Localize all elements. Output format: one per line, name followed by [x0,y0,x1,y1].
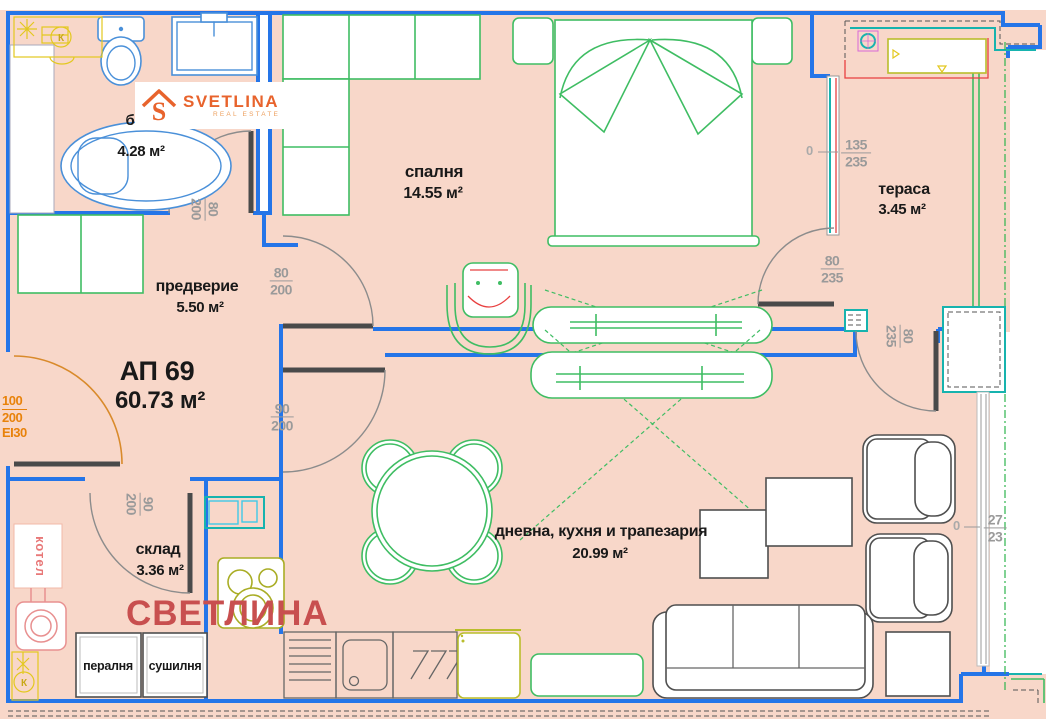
bedroom-area: 14.55 м² [403,185,462,203]
wall-insulation-piece [943,307,1005,392]
ac-unit [888,39,986,73]
bathroom-label: б [126,112,135,129]
bedroom-window [827,76,839,235]
dim-width: 100 [2,393,27,410]
dim-width: 27 [984,511,1007,528]
shower-head [201,13,227,22]
dim-height: 200 [123,493,139,515]
sliding-wardrobe [533,307,772,343]
dryer-label: сушилня [149,659,202,673]
brand-tagline: REAL ESTATE [183,112,280,119]
survey-cross-icon [17,19,37,39]
dim-storage-door: 90 200 [123,493,156,516]
storage-label: склад [136,541,181,559]
boiler-room-label: котел [33,536,48,577]
bed [555,20,752,238]
dining-table [372,451,492,571]
sink-drain [350,677,359,686]
vanity [10,45,54,213]
armchair [866,534,952,622]
apartment-id: АП 69 [120,356,195,387]
armchair-seat [463,263,518,317]
bedroom-furniture [283,15,792,362]
dim-living-window: 27 23 [984,511,1007,544]
bedroom-label: спалня [405,162,463,182]
dim-width: 90 [140,493,157,516]
fridge [458,633,520,698]
datum-living-window: 0 [953,518,960,533]
hall-closet [18,215,143,293]
brand-name: SVETLINA [183,93,280,110]
boiler [16,602,66,650]
living-furniture [362,330,955,698]
watermark: СВЕТЛИНА [126,594,329,634]
dim-height: 23 [988,529,1003,545]
drain-letter: К [21,678,28,689]
dim-height: 235 [883,325,899,347]
coffee-table [766,478,852,546]
dim-width: 80 [900,325,917,348]
dim-width: 80 [270,264,293,281]
living-label: дневна, кухня и трапезария [495,523,708,541]
bench-table [531,654,643,696]
terrace-area: 3.45 м² [878,201,925,218]
sofa [653,605,873,698]
living-area: 20.99 м² [572,545,627,562]
terrace-railing [973,42,979,330]
bathroom-area: 4.28 м² [117,143,164,160]
drain-letter: К [58,33,65,44]
dishwasher [393,632,457,698]
terrace-label: тераса [878,181,930,199]
armchair [863,435,955,523]
datum-bedroom-window: 0 [806,143,813,158]
storage-area: 3.36 м² [136,562,183,579]
dim-width: 80 [821,252,844,269]
dim-living-terrace-door: 80 235 [883,325,916,348]
dim-width: 135 [841,136,871,153]
dim-height: 200 [271,418,293,434]
dim-height: 200 [270,282,292,298]
dim-entrance-door: 100 200 EI30 [2,393,27,441]
dim-bedroom-terrace-door: 80 235 [821,252,844,285]
dim-living-door: 90 200 [271,400,294,433]
dining-set [362,440,502,584]
dim-width: 80 [205,198,222,221]
dim-bedroom-window: 135 235 [841,136,871,169]
dim-width: 90 [271,400,294,417]
sliding-wardrobe [531,352,772,398]
hallway-area: 5.50 м² [176,299,223,316]
coffee-table [700,510,768,578]
washer-label: пералня [83,659,133,673]
logo-monogram: S [152,97,166,126]
fire-rating: EI30 [2,425,27,441]
nightstand [513,18,553,64]
dim-height: 235 [821,270,843,286]
house-icon: S [139,86,179,126]
dim-bathroom-door: 80 200 [188,198,221,221]
hallway-label: предверие [156,278,239,296]
drawer-unit [284,632,336,698]
side-table [886,632,950,696]
dim-height: 200 [2,410,27,426]
floor-plan: К К [0,0,1049,719]
bed-footboard [548,236,759,246]
apartment-area: 60.73 м² [115,387,205,415]
dim-bedroom-door: 80 200 [270,264,293,297]
dim-height: 200 [188,198,204,220]
brand-logo: S SVETLINA REAL ESTATE [135,82,286,129]
dim-height: 235 [845,154,867,170]
nightstand [752,18,792,64]
wardrobe [283,15,480,79]
